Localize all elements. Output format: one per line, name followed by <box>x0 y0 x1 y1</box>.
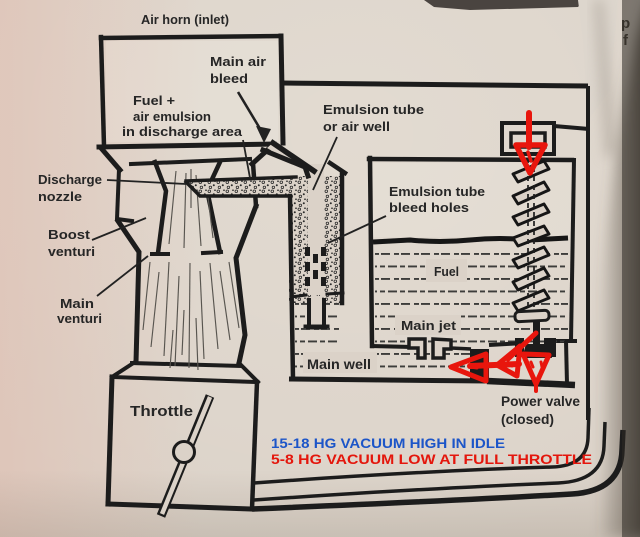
svg-text:venturi: venturi <box>48 244 95 259</box>
svg-text:Air horn (inlet): Air horn (inlet) <box>141 12 229 27</box>
svg-text:Discharge: Discharge <box>38 172 102 187</box>
svg-text:Emulsion tube: Emulsion tube <box>389 184 485 199</box>
svg-text:Emulsion tube: Emulsion tube <box>323 102 424 117</box>
svg-text:Main air: Main air <box>210 54 266 69</box>
svg-text:bleed holes: bleed holes <box>389 200 469 215</box>
svg-text:in discharge area: in discharge area <box>122 124 243 139</box>
svg-text:Fuel +: Fuel + <box>133 93 175 108</box>
svg-text:venturi: venturi <box>57 311 102 326</box>
svg-text:Main jet: Main jet <box>401 318 457 333</box>
svg-text:Fuel: Fuel <box>434 264 459 279</box>
svg-text:nozzle: nozzle <box>38 189 82 204</box>
svg-text:or air well: or air well <box>323 119 390 134</box>
svg-text:Main: Main <box>60 296 94 311</box>
svg-text:air emulsion: air emulsion <box>133 109 211 124</box>
svg-text:Throttle: Throttle <box>130 404 193 420</box>
svg-text:Main well: Main well <box>307 356 371 372</box>
svg-text:5-8 HG VACUUM LOW AT FULL THRO: 5-8 HG VACUUM LOW AT FULL THROTTLE <box>271 451 592 467</box>
svg-text:15-18 HG VACUUM HIGH IN IDLE: 15-18 HG VACUUM HIGH IN IDLE <box>271 436 505 451</box>
svg-text:Power valve: Power valve <box>501 394 580 409</box>
svg-text:Boost: Boost <box>48 227 91 242</box>
svg-text:bleed: bleed <box>210 71 248 86</box>
svg-text:(closed): (closed) <box>501 412 554 427</box>
